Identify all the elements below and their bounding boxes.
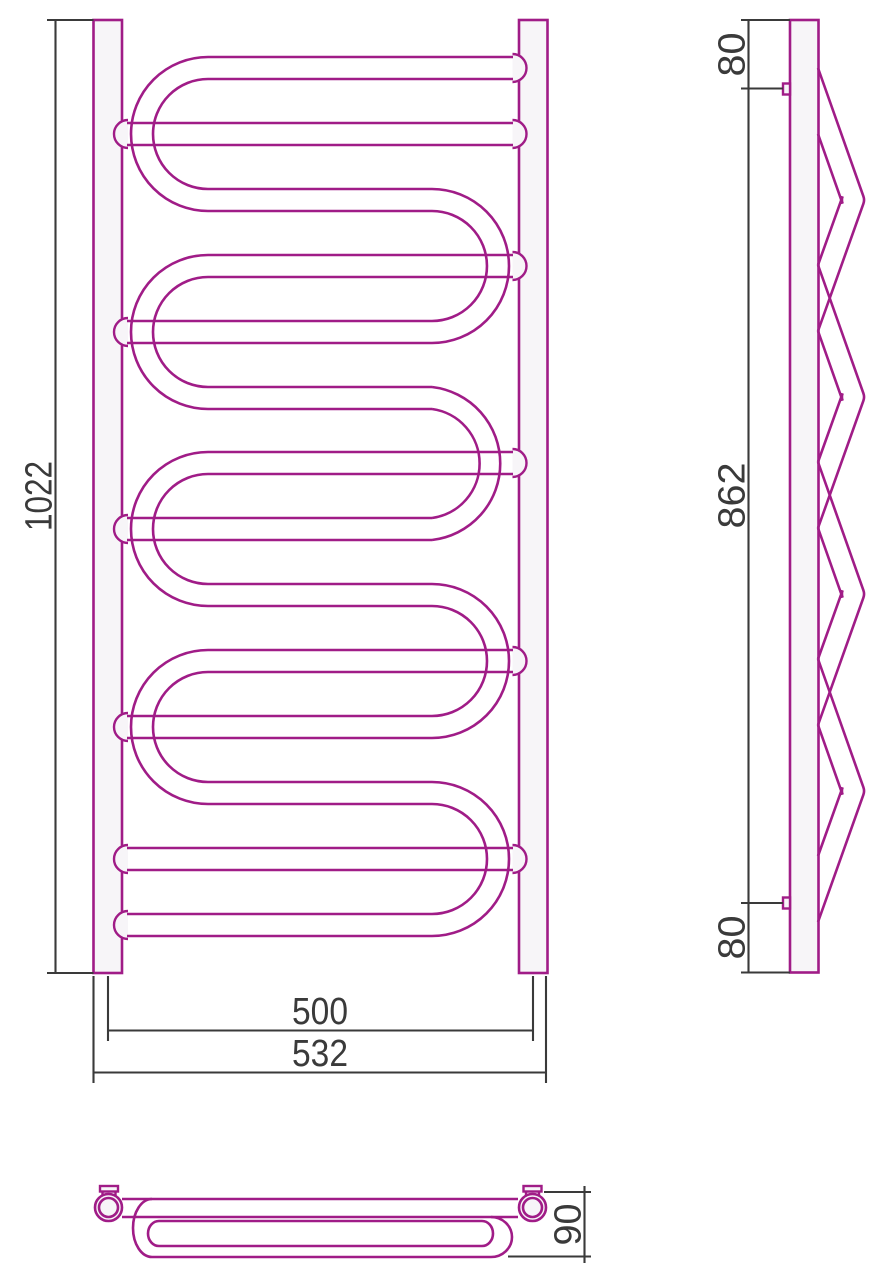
wall-bracket-top (783, 84, 790, 95)
left-u-turns (131, 57, 208, 804)
plan-dimensions: 90 (508, 1186, 591, 1263)
plan-coil-inner (148, 1221, 493, 1246)
side-dimensions: 80 862 80 (712, 20, 791, 973)
depth-dimension-label: 90 (548, 1204, 590, 1246)
top-plan-view: 90 (95, 1186, 591, 1263)
side-bottom-offset-dimension-label: 80 (712, 916, 754, 960)
side-view: 80 862 80 (712, 20, 865, 973)
front-left-rail (94, 20, 123, 973)
front-view: 1022 500 532 (19, 20, 548, 1083)
overall-width-dimension-label: 532 (292, 1033, 348, 1075)
plan-straight-tube (122, 1199, 518, 1217)
height-dimension-label: 1022 (19, 461, 61, 531)
wall-bracket-bottom (783, 898, 790, 909)
side-top-offset-dimension-label: 80 (712, 33, 754, 77)
technical-drawing: 1022 500 532 80 862 80 (0, 0, 884, 1280)
plan-coil-outer (133, 1199, 512, 1257)
serpentine-tubes (127, 57, 513, 936)
side-coil-projections (818, 68, 864, 922)
plan-brackets (100, 1186, 542, 1199)
side-span-dimension-label: 862 (712, 463, 754, 529)
drawing-page: 1022 500 532 80 862 80 (0, 0, 884, 1280)
front-right-rail (519, 20, 548, 973)
right-u-turns (432, 189, 509, 936)
axis-width-dimension-label: 500 (292, 991, 348, 1033)
side-rail (790, 20, 819, 973)
